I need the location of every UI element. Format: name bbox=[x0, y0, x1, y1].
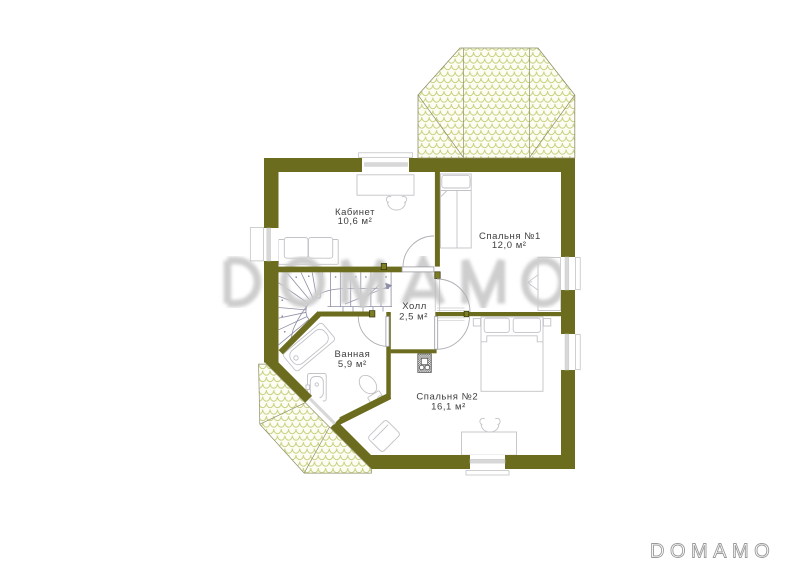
svg-text:Холл: Холл bbox=[402, 301, 427, 312]
svg-text:16,1 м²: 16,1 м² bbox=[431, 402, 466, 413]
svg-text:2,5 м²: 2,5 м² bbox=[399, 311, 428, 322]
svg-text:5,9 м²: 5,9 м² bbox=[338, 359, 367, 370]
svg-text:DOMAMO: DOMAMO bbox=[650, 541, 775, 563]
svg-text:12,0 м²: 12,0 м² bbox=[492, 240, 527, 251]
svg-text:10,6 м²: 10,6 м² bbox=[338, 216, 373, 227]
